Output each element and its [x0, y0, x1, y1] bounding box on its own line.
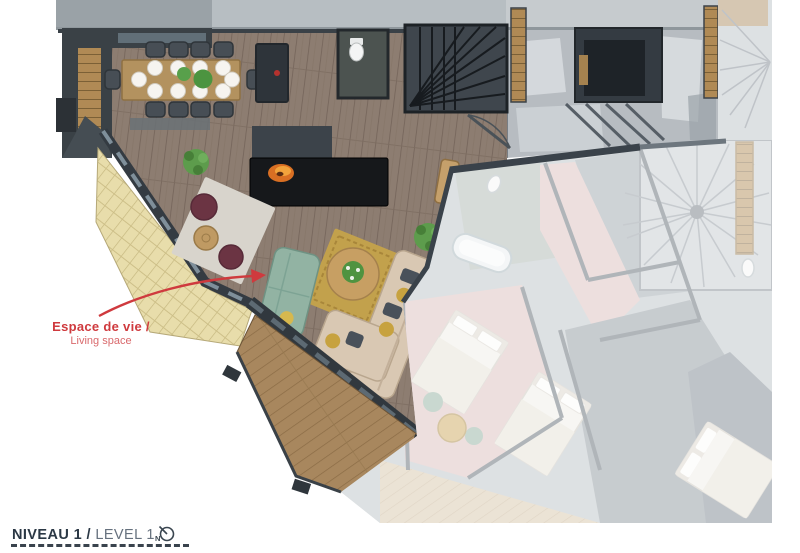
- wc-room: [338, 30, 388, 98]
- floor-plant: [183, 149, 209, 175]
- table-plant: [194, 70, 213, 89]
- annotation-label-fr: Espace de vie /: [36, 320, 166, 335]
- dining-bench: [130, 118, 210, 130]
- title-underline-dashed: [11, 544, 189, 547]
- floorplan-render: [0, 0, 800, 553]
- level-title-en: LEVEL 1: [95, 527, 155, 543]
- compass-letter: N: [155, 534, 160, 543]
- pouf-burgundy: [191, 194, 217, 220]
- railing-post: [222, 365, 241, 382]
- toilet-icon: [350, 38, 364, 61]
- level-title: NIVEAU 1 / LEVEL 1: [12, 526, 155, 544]
- level-title-fr: NIVEAU 1 /: [12, 527, 91, 543]
- cooktop-dot: [274, 70, 280, 76]
- north-compass-icon: N: [152, 524, 178, 546]
- annotation-living-space: Espace de vie / Living space: [36, 320, 166, 348]
- corner-spiral-stair: [718, 0, 772, 140]
- pouf-burgundy: [219, 245, 243, 269]
- top-roof-band: [56, 0, 720, 30]
- kitchen-island: [256, 44, 288, 102]
- floorplan-page: Espace de vie / Living space NIVEAU 1 / …: [0, 0, 800, 553]
- table-plant: [177, 67, 191, 81]
- annotation-label-en: Living space: [36, 335, 166, 348]
- side-table-wood: [194, 226, 218, 250]
